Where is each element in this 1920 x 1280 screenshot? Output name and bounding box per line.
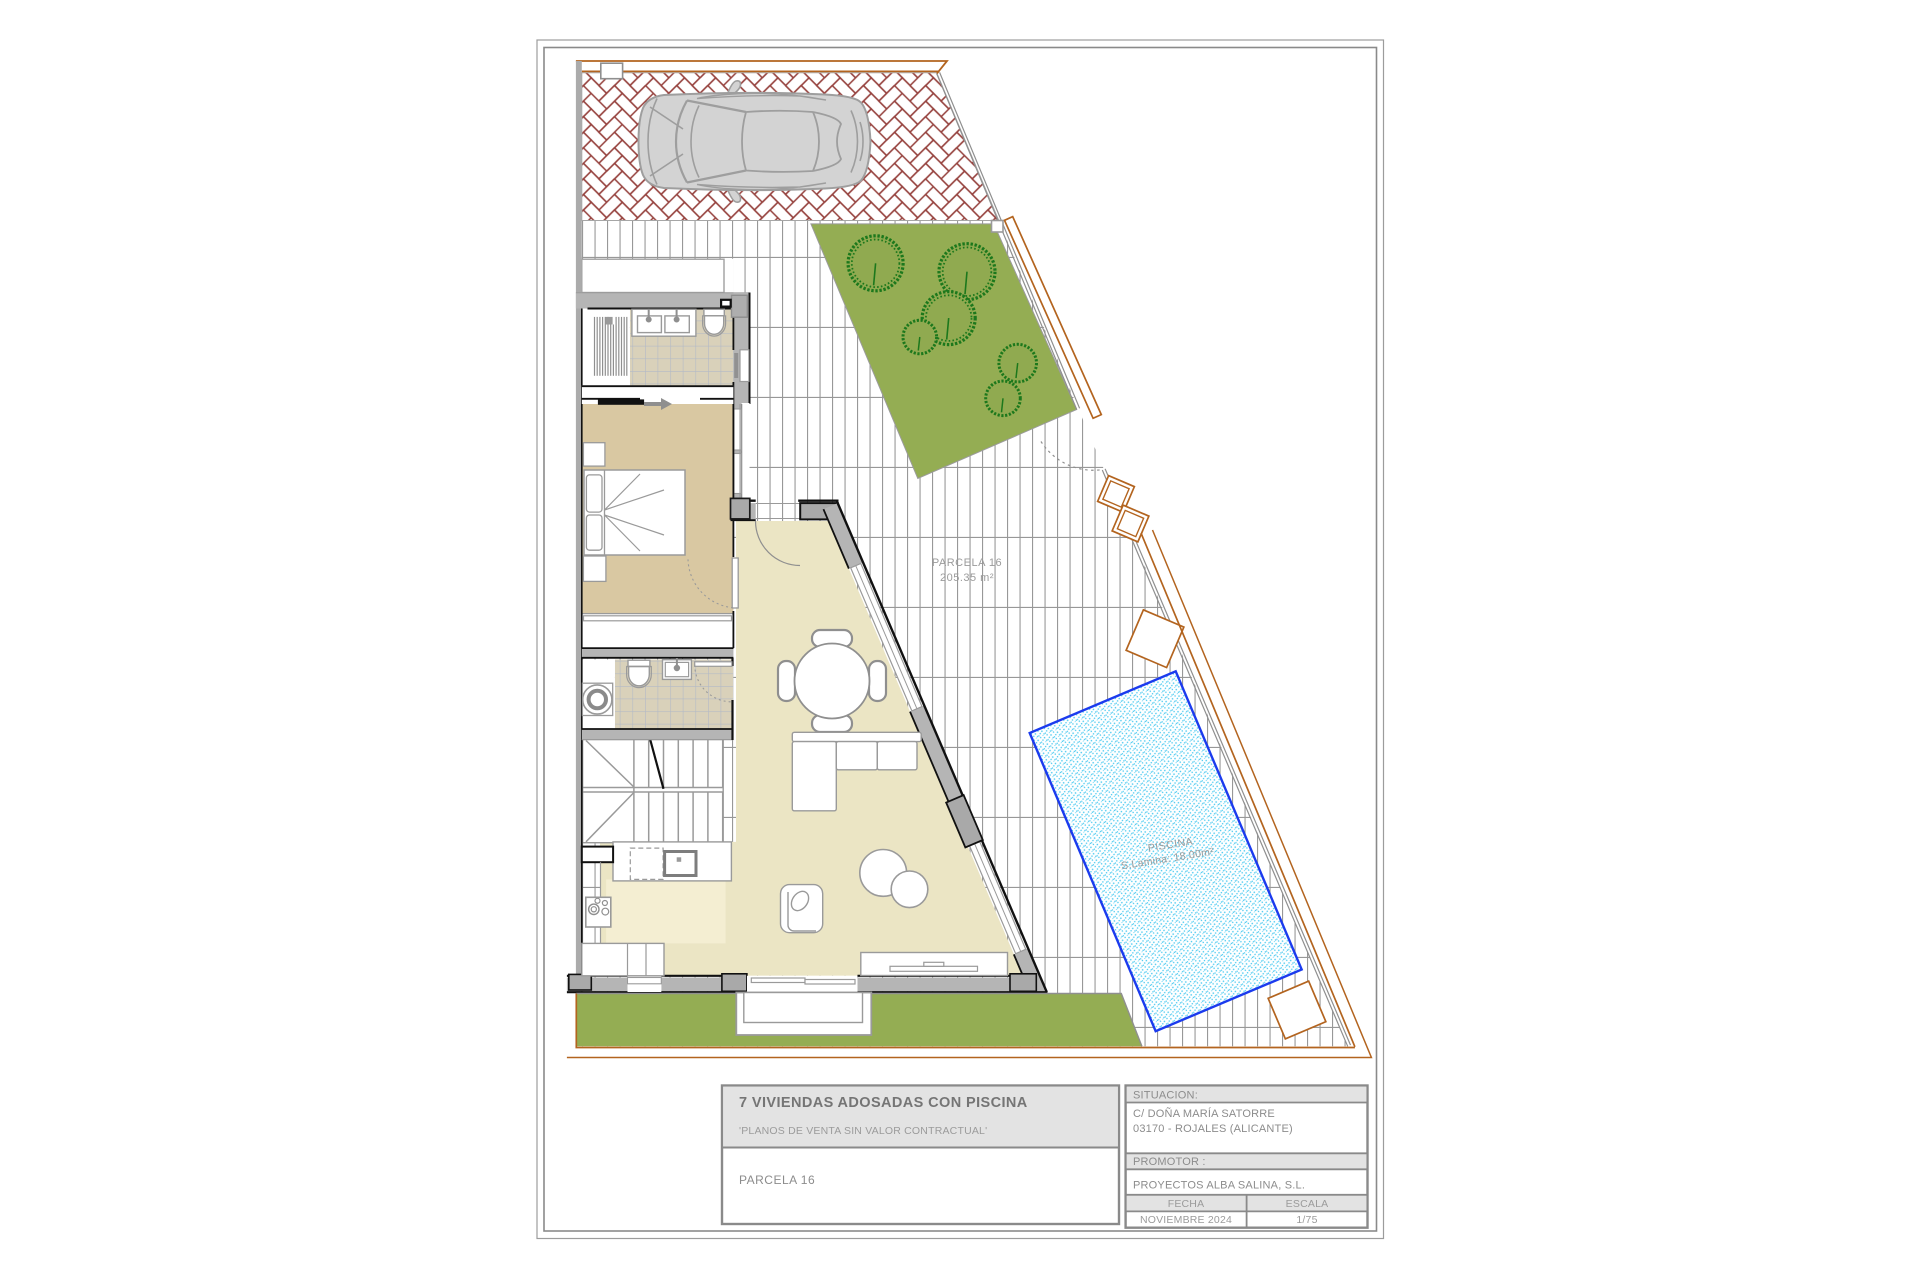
svg-text:1/75: 1/75 [1296, 1214, 1317, 1226]
svg-text:03170 - ROJALES (ALICANTE): 03170 - ROJALES (ALICANTE) [1133, 1123, 1293, 1135]
svg-text:PARCELA 16: PARCELA 16 [739, 1173, 815, 1187]
svg-text:'PLANOS DE VENTA SIN VALOR CON: 'PLANOS DE VENTA SIN VALOR CONTRACTUAL' [739, 1125, 987, 1137]
svg-text:7 VIVIENDAS ADOSADAS CON PISCI: 7 VIVIENDAS ADOSADAS CON PISCINA [739, 1095, 1028, 1111]
svg-text:PARCELA 16: PARCELA 16 [932, 557, 1002, 569]
svg-text:NOVIEMBRE 2024: NOVIEMBRE 2024 [1140, 1214, 1232, 1226]
svg-text:PROYECTOS ALBA SALINA, S.L.: PROYECTOS ALBA SALINA, S.L. [1133, 1180, 1305, 1192]
svg-text:PROMOTOR :: PROMOTOR : [1133, 1156, 1206, 1168]
svg-text:SITUACION:: SITUACION: [1133, 1090, 1198, 1102]
svg-text:C/ DOÑA MARÍA SATORRE: C/ DOÑA MARÍA SATORRE [1133, 1107, 1275, 1120]
svg-text:ESCALA: ESCALA [1286, 1198, 1329, 1210]
svg-text:205.35 m²: 205.35 m² [940, 572, 994, 584]
svg-text:FECHA: FECHA [1168, 1198, 1205, 1210]
